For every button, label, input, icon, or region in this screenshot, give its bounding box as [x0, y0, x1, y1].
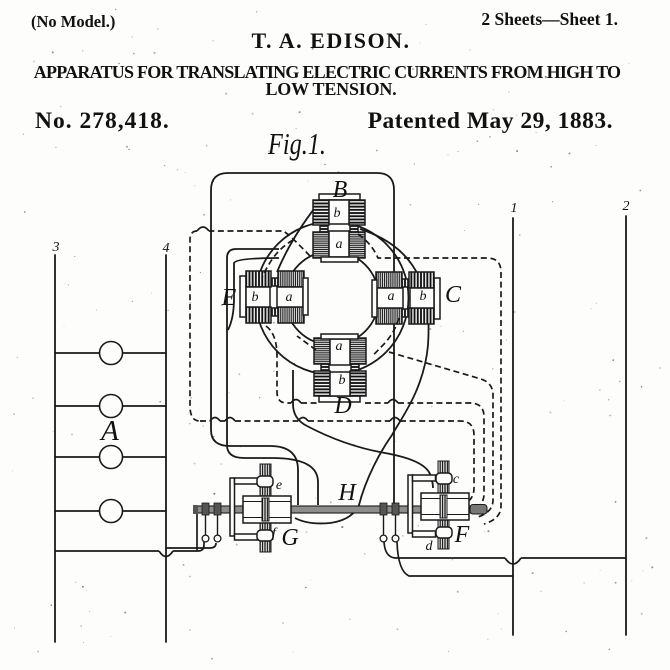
svg-text:(No Model.): (No Model.) [31, 12, 115, 31]
svg-text:G: G [281, 525, 298, 551]
svg-text:b: b [339, 373, 346, 388]
svg-text:a: a [336, 237, 343, 252]
svg-text:No. 278,418.: No. 278,418. [35, 108, 170, 134]
svg-text:Fig.1.: Fig.1. [267, 126, 326, 161]
svg-text:T. A. EDISON.: T. A. EDISON. [251, 28, 410, 53]
svg-text:B: B [333, 177, 348, 203]
svg-text:e: e [276, 478, 282, 493]
svg-text:d: d [426, 539, 434, 554]
svg-text:b: b [334, 206, 341, 221]
svg-text:H: H [337, 480, 357, 506]
svg-text:E: E [221, 285, 237, 311]
svg-text:F: F [454, 522, 470, 548]
svg-text:b: b [420, 289, 427, 304]
svg-text:1: 1 [511, 201, 518, 216]
svg-text:A: A [99, 415, 119, 447]
svg-text:3: 3 [52, 240, 60, 255]
svg-text:a: a [336, 339, 343, 354]
svg-text:c: c [453, 472, 460, 487]
svg-text:2: 2 [623, 199, 630, 214]
svg-text:LOW TENSION.: LOW TENSION. [266, 79, 397, 99]
svg-text:2 Sheets—Sheet 1.: 2 Sheets—Sheet 1. [481, 9, 618, 29]
svg-text:D: D [333, 393, 351, 419]
svg-text:a: a [388, 289, 395, 304]
svg-text:a: a [286, 290, 293, 305]
svg-text:Patented May 29, 1883.: Patented May 29, 1883. [368, 108, 613, 134]
svg-text:b: b [252, 290, 259, 305]
svg-text:C: C [445, 282, 462, 308]
svg-text:4: 4 [163, 241, 170, 256]
